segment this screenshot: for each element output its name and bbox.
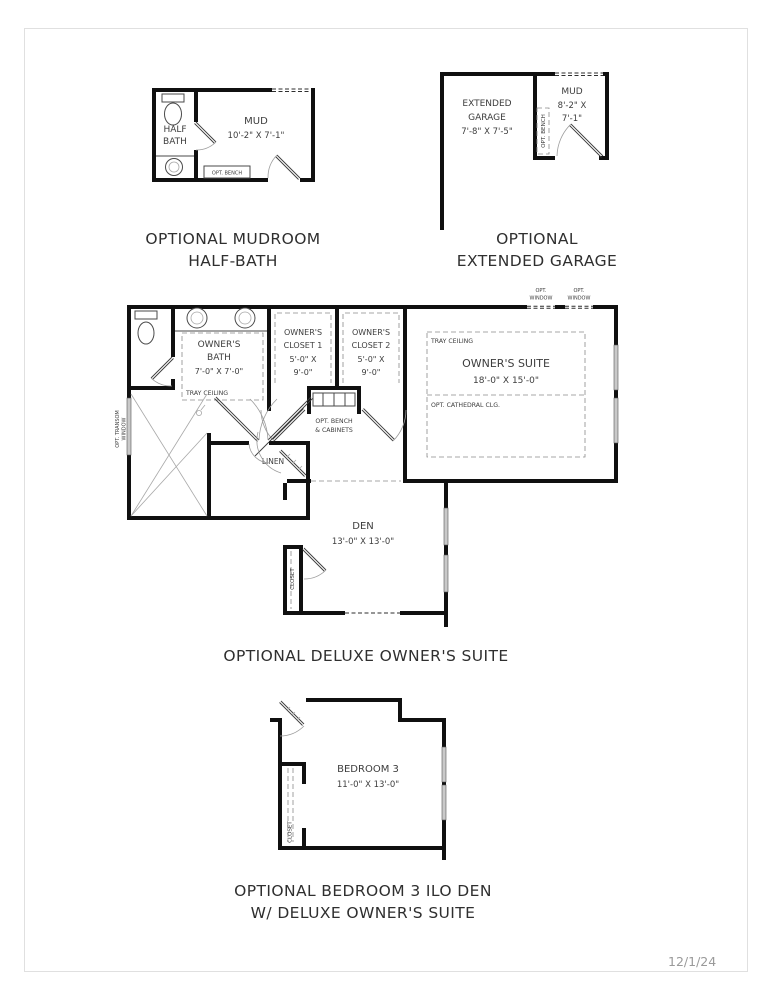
opt-bench-label: OPT. BENCH: [541, 114, 547, 148]
closet1-dims-1: 5'-0" X: [290, 355, 317, 364]
opt-bench: OPT. BENCH: [537, 108, 549, 154]
opt-window-1-line2: WINDOW: [530, 296, 553, 302]
opt-window-labels: OPT. WINDOW OPT. WINDOW: [530, 288, 591, 302]
linen-label: LINEN: [262, 457, 284, 466]
bedroom-3-plan: CLOSET BEDROOM 3 11'-0" X 13'-0": [262, 682, 462, 867]
suite-opt-ceiling-label: OPT. CATHEDRAL CLG.: [431, 402, 500, 409]
mud-room-label: MUD: [244, 116, 268, 127]
mudroom-half-bath-plan: OPT. BENCH HALF BATH MUD 10'-2" X 7'-1": [148, 84, 324, 188]
bath-dims: 7'-0" X 7'-0": [195, 367, 243, 376]
closet-label: CLOSET: [288, 821, 294, 843]
bedroom-caption-line1: OPTIONAL BEDROOM 3 ILO DEN: [210, 880, 516, 902]
opt-window-2-line2: WINDOW: [568, 296, 591, 302]
mudroom-caption-line2: HALF-BATH: [126, 250, 340, 272]
suite-caption-line: OPTIONAL DELUXE OWNER'S SUITE: [213, 645, 519, 667]
suite-caption: OPTIONAL DELUXE OWNER'S SUITE: [213, 645, 519, 667]
bench-label-1: OPT. BENCH: [315, 418, 353, 425]
bath-ceiling-label: TRAY CEILING: [185, 390, 228, 397]
mudroom-caption: OPTIONAL MUDROOM HALF-BATH: [126, 228, 340, 272]
mud-room-dims-2: 7'-1": [562, 114, 582, 124]
suite-label: OWNER'S SUITE: [462, 357, 550, 370]
half-bath-label-1: HALF: [163, 125, 186, 135]
suite-ceiling-label: TRAY CEILING: [430, 338, 473, 345]
sink: [156, 156, 194, 176]
closet1-label-1: OWNER'S: [284, 328, 322, 337]
suite-walls: [127, 305, 618, 520]
den-label: DEN: [352, 521, 374, 532]
garage-walls: [440, 72, 609, 230]
revision-date: 12/1/24: [668, 954, 716, 969]
opt-bench-label: OPT. BENCH: [212, 171, 242, 177]
bedroom-label: BEDROOM 3: [337, 764, 399, 775]
opt-bench-cabinets: OPT. BENCH & CABINETS: [313, 393, 355, 434]
bedroom-closet: CLOSET: [288, 768, 294, 843]
bath-label-2: BATH: [207, 353, 231, 363]
water-closet: [135, 311, 174, 386]
closet2-label-1: OWNER'S: [352, 328, 390, 337]
extended-garage-plan: OPT. BENCH EXTENDED GARAGE 7'-8" X 7'-5"…: [435, 64, 620, 234]
half-bath-door: [195, 122, 217, 150]
mud-room-dims: 10'-2" X 7'-1": [228, 131, 285, 141]
entry-door: [268, 155, 300, 180]
garage-label-2: GARAGE: [468, 113, 506, 123]
suite-dims: 18'-0" X 15'-0": [473, 376, 539, 386]
garage-caption-line1: OPTIONAL: [430, 228, 644, 250]
opt-transom-window-label: OPT. TRANSOM WINDOW: [115, 410, 128, 448]
garage-label-1: EXTENDED: [462, 99, 511, 109]
bedroom-dims: 11'-0" X 13'-0": [337, 780, 399, 790]
opt-window-1-line1: OPT.: [535, 288, 546, 294]
den-dims: 13'-0" X 13'-0": [332, 537, 394, 547]
bench-label-2: & CABINETS: [315, 427, 353, 434]
vanity-sinks: [175, 308, 267, 331]
closet1-dims-2: 9'-0": [294, 368, 313, 377]
garage-caption: OPTIONAL EXTENDED GARAGE: [430, 228, 644, 272]
garage-dims: 7'-8" X 7'-5": [461, 127, 513, 137]
opt-bench: OPT. BENCH: [204, 166, 250, 178]
mudroom-caption-line1: OPTIONAL MUDROOM: [126, 228, 340, 250]
closet2-label-2: CLOSET 2: [352, 341, 391, 350]
linen-closet: LINEN: [249, 442, 284, 466]
entry-door: [280, 701, 305, 736]
transom-line2: WINDOW: [122, 418, 128, 441]
closet2-dims-2: 9'-0": [362, 368, 381, 377]
closet2-dims-1: 5'-0" X: [358, 355, 385, 364]
half-bath-label-2: BATH: [163, 137, 187, 147]
owners-bath: OWNER'S BATH 7'-0" X 7'-0" TRAY CEILING: [182, 333, 263, 400]
hall-angled-door: [257, 432, 306, 477]
bedroom-caption: OPTIONAL BEDROOM 3 ILO DEN W/ DELUXE OWN…: [210, 880, 516, 924]
mud-room-label: MUD: [561, 87, 582, 97]
toilet: [162, 94, 184, 125]
hall-double-doors: [215, 397, 313, 442]
garage-caption-line2: EXTENDED GARAGE: [430, 250, 644, 272]
bedroom-caption-line2: W/ DELUXE OWNER'S SUITE: [210, 902, 516, 924]
transom-line1: OPT. TRANSOM: [115, 410, 121, 448]
den-closet-label: CLOSET: [290, 568, 296, 590]
shower: [131, 394, 207, 516]
bath-label-1: OWNER'S: [198, 340, 241, 350]
opt-window-2-line1: OPT.: [573, 288, 584, 294]
deluxe-owners-suite-plan: OPT. WINDOW OPT. WINDOW OPT. TRANSOM WIN…: [115, 283, 625, 633]
mud-door: [557, 124, 603, 158]
bedroom-walls: [270, 698, 446, 860]
mud-room-dims-1: 8'-2" X: [558, 101, 587, 111]
closet1-label-2: CLOSET 1: [284, 341, 323, 350]
owners-suite-room: TRAY CEILING OWNER'S SUITE 18'-0" X 15'-…: [427, 332, 585, 457]
